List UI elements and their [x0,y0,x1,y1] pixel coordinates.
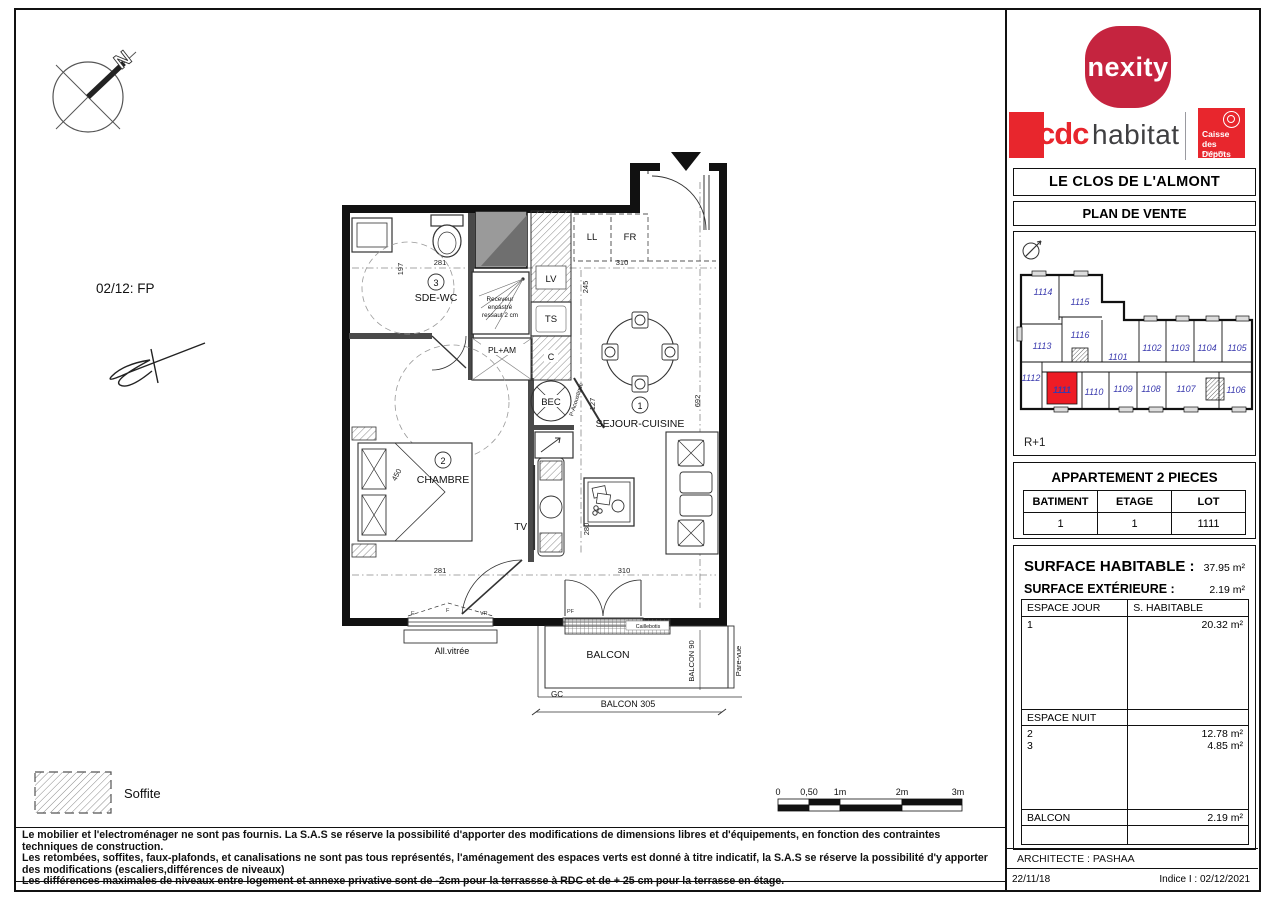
label-ll: LL [587,232,598,243]
coffee-table [584,478,634,526]
svg-text:281: 281 [434,566,447,575]
nexity-logo-text: nexity [1087,52,1168,83]
svg-text:0,50: 0,50 [800,787,818,797]
soffite-legend: Soffite [35,772,161,813]
svg-text:1102: 1102 [1142,343,1161,353]
electrical-panel [535,432,573,458]
plan-date: 22/11/18 [1012,874,1050,885]
label-c: C [548,352,555,362]
balcon-dimension [532,709,726,715]
svg-text:281: 281 [434,258,447,267]
label-ts: TS [545,314,557,325]
svg-text:1: 1 [637,401,642,411]
bedroom-door [462,560,522,614]
apartment-info-box: APPARTEMENT 2 PIECES BATIMENT ETAGE LOT … [1013,462,1256,539]
room-label-sde-wc: SDE-WC [415,292,458,304]
architect-name: ARCHITECTE : PASHAA [1017,853,1135,865]
label-lv: LV [546,274,558,285]
svg-text:2m: 2m [896,787,909,797]
label-tv: TV [514,522,527,533]
nexity-logo: nexity [1085,26,1171,108]
plan-de-vente-sheet: N 02/12: FP [0,0,1273,900]
disclaimer-divider-bottom [16,881,1005,882]
svg-text:F: F [446,608,450,614]
surface-habitable-row: SURFACE HABITABLE : 37.95 m² [1024,558,1245,575]
svg-text:1116: 1116 [1071,330,1090,340]
svg-text:1109: 1109 [1113,384,1132,394]
label-fr: FR [624,232,637,243]
bathroom-fixtures [352,215,463,257]
espace-nuit-header-row: ESPACE NUIT [1022,710,1248,726]
disclaimer-divider-top [16,827,1005,828]
footer-date-row: 22/11/18 Indice I : 02/12/2021 [1005,868,1258,892]
svg-text:1106: 1106 [1226,385,1245,395]
bathroom-door [432,336,466,370]
espace-jour-value: 20.32 m² [1128,617,1248,709]
espace-jour-header-row: ESPACE JOUR S. HABITABLE [1022,600,1248,617]
surface-habitable-value: 37.95 m² [1204,562,1245,574]
disclaimer-line-3: Les différences maximales de niveaux ent… [22,876,997,888]
svg-text:PL+AM: PL+AM [488,345,516,355]
svg-text:127: 127 [588,398,597,411]
svg-text:Receveur: Receveur [487,296,514,303]
svg-text:2: 2 [440,456,445,466]
tv-console [534,458,564,556]
entrance-marker-icon [671,152,701,171]
surface-exterieure-value: 2.19 m² [1209,584,1245,596]
svg-text:PF: PF [567,609,575,615]
balcony: Caillebotis [538,619,742,697]
svg-text:encastré: encastré [488,304,513,311]
logo-divider [1185,112,1186,160]
key-plan-compass-icon [1023,241,1041,259]
apartment-title: APPARTEMENT 2 PIECES [1014,470,1255,485]
apartment-floor-plan: Receveur encastré ressaut 2 cm PL+AM LV … [342,152,743,715]
svg-text:310: 310 [616,258,629,267]
shower [475,211,527,268]
page-reference: 02/12: FP [96,281,155,296]
svg-text:1108: 1108 [1141,384,1160,394]
disclaimer-line-2: Les retombées, soffites, faux-plafonds, … [22,853,997,876]
svg-text:0: 0 [775,787,780,797]
lot-value: 1111 [1172,513,1246,535]
espace-nuit-body: 2 3 12.78 m² 4.85 m² [1022,726,1248,810]
floor-level-label: R+1 [1024,437,1045,449]
room-label-chambre: CHAMBRE [417,474,470,486]
svg-text:1115: 1115 [1071,297,1091,307]
signature [110,343,205,386]
svg-text:1110: 1110 [1085,387,1104,397]
key-plan: 1114 1115 1116 1113 1101 1102 1103 1104 … [1014,232,1254,454]
disclaimer-line-1: Le mobilier et l'electroménager ne sont … [22,830,997,853]
dining-table [602,312,678,392]
svg-text:1113: 1113 [1033,341,1052,351]
label-balcon: BALCON [586,649,629,661]
closet-pl-am: PL+AM [472,338,532,380]
title-block-footer: ARCHITECTE : PASHAA 22/11/18 Indice I : … [1005,848,1258,891]
svg-text:1105: 1105 [1227,343,1247,353]
espace-jour-body: 1 20.32 m² [1022,617,1248,710]
label-all-vitree: All.vitrée [435,646,470,656]
window-all-vitree [404,603,497,643]
svg-text:1104: 1104 [1197,343,1216,353]
espace-nuit-value-2: 12.78 m² [1133,728,1243,740]
batiment-value: 1 [1024,513,1098,535]
caisse-emblem-icon [1223,111,1240,128]
disclaimer: Le mobilier et l'electroménager ne sont … [22,830,997,888]
empty-row [1022,826,1248,844]
svg-text:1112: 1112 [1022,373,1041,383]
surfaces-table: ESPACE JOUR S. HABITABLE 1 20.32 m² ESPA… [1021,599,1249,845]
label-pare-vue: Pare-vue [734,646,743,676]
kitchen-column: LV TS C [531,211,571,380]
label-gc: GC [551,690,563,699]
svg-text:197: 197 [396,263,405,276]
project-title: LE CLOS DE L'ALMONT [1013,168,1256,196]
etage-value: 1 [1098,513,1172,535]
surfaces-box: SURFACE HABITABLE : 37.95 m² SURFACE EXT… [1013,545,1256,850]
svg-text:1114: 1114 [1034,287,1053,297]
espace-nuit-value-3: 4.85 m² [1133,740,1243,752]
balcon-surface-value: 2.19 m² [1128,810,1248,825]
svg-text:ressaut 2 cm: ressaut 2 cm [482,312,518,319]
svg-text:280: 280 [582,523,591,536]
unit-number-1111: 1111 [1053,385,1071,395]
label-caillebotis: Caillebotis [636,624,661,630]
svg-text:3m: 3m [952,787,965,797]
key-plan-box: 1114 1115 1116 1113 1101 1102 1103 1104 … [1013,231,1256,456]
revision-indice: Indice I : 02/12/2021 [1159,874,1250,885]
label-balcon-90: BALCON 90 [687,640,696,681]
caisse-des-depots-logo: Caisse des Dépôts GROUPE [1198,108,1245,158]
svg-text:VR: VR [480,611,488,617]
bed [352,427,472,557]
apartment-table: BATIMENT ETAGE LOT 1 1 1111 [1023,490,1246,535]
scale-bar: 0 0,50 1m 2m 3m [775,787,964,811]
svg-text:1101: 1101 [1108,352,1127,362]
svg-text:245: 245 [581,281,590,294]
label-balcon-305: BALCON 305 [601,699,656,709]
surface-exterieure-row: SURFACE EXTÉRIEURE : 2.19 m² [1024,582,1245,596]
svg-text:1107: 1107 [1176,384,1196,394]
document-type-title: PLAN DE VENTE [1013,201,1256,226]
svg-text:1103: 1103 [1170,343,1189,353]
cdc-logo-text: cdc [1038,116,1088,152]
svg-text:BEC: BEC [541,397,561,408]
svg-text:3: 3 [433,278,438,288]
room-label-sejour-cuisine: SEJOUR-CUISINE [596,418,685,430]
balcon-row: BALCON 2.19 m² [1022,810,1248,826]
shower-note: Receveur encastré ressaut 2 cm [472,272,529,334]
svg-text:E: E [411,611,415,617]
svg-text:310: 310 [618,566,631,575]
sofa [666,432,718,554]
svg-text:692: 692 [693,395,702,408]
svg-text:1m: 1m [834,787,847,797]
soffite-legend-label: Soffite [124,786,161,801]
habitat-logo-text: habitat [1092,119,1180,151]
north-compass-icon: N [53,46,136,132]
